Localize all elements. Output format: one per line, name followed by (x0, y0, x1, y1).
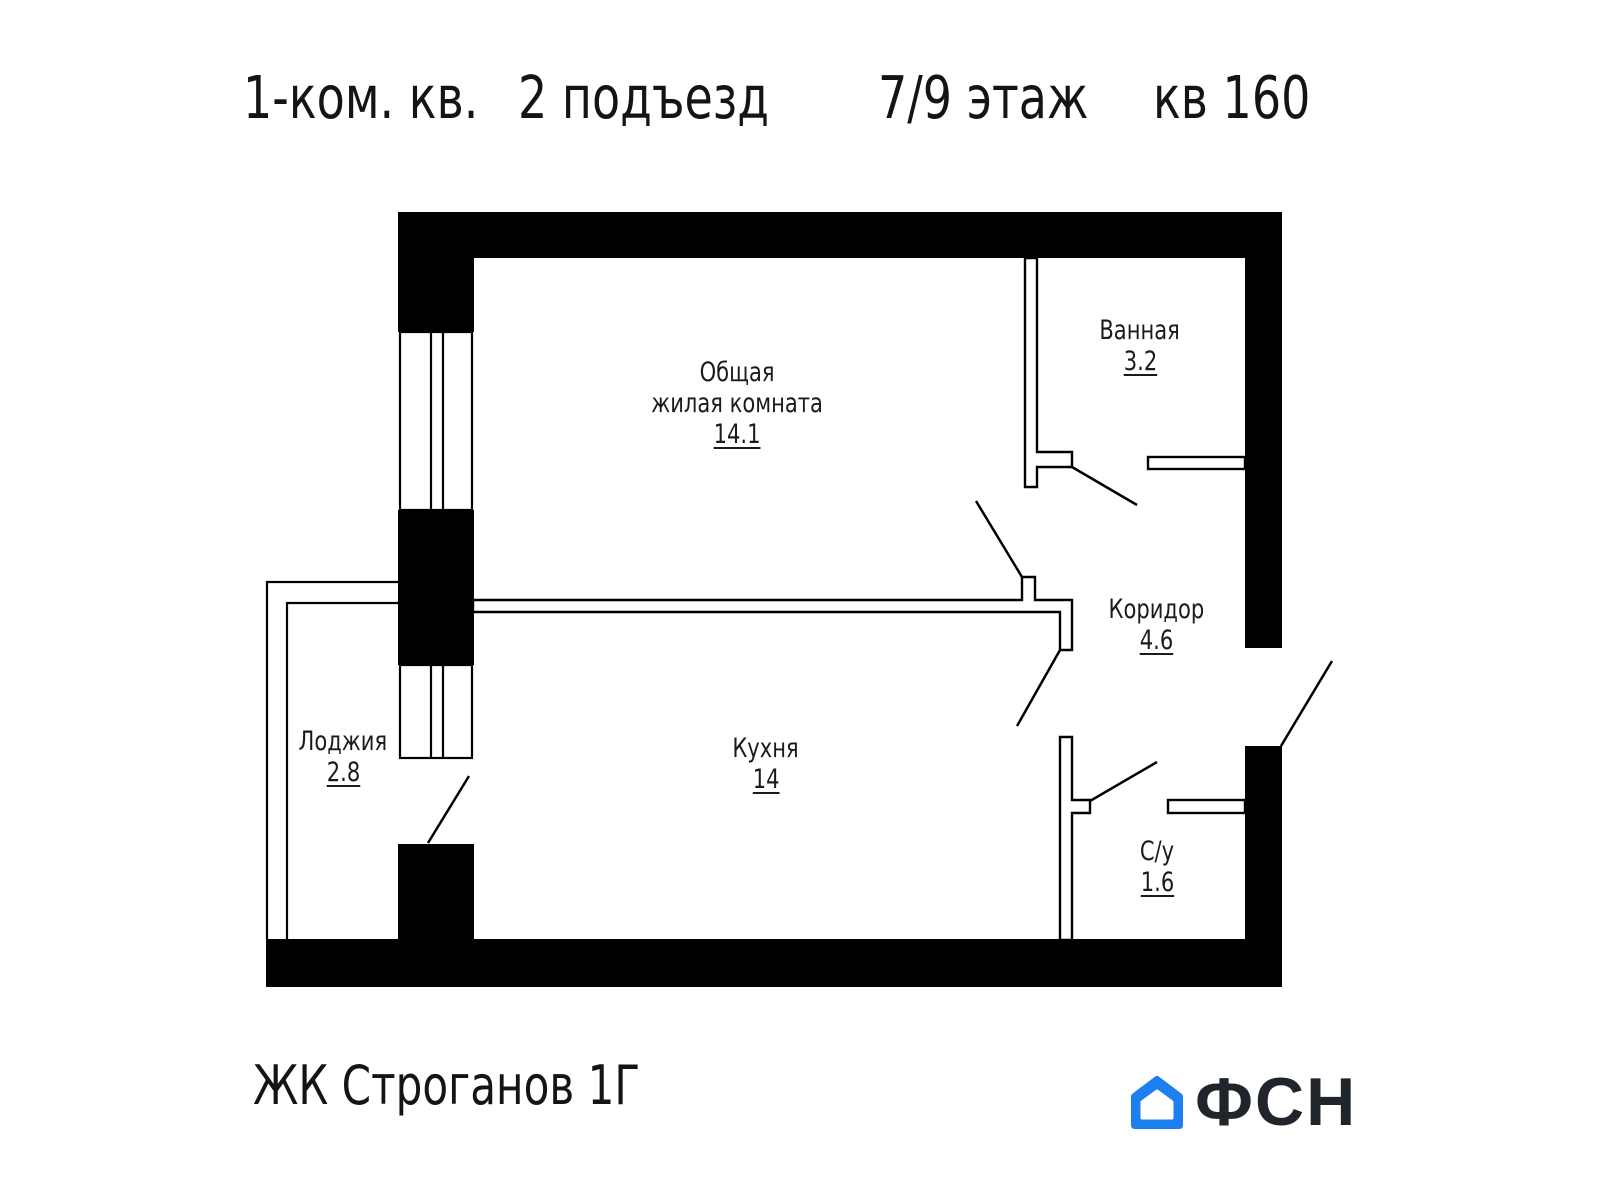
wall-right-upper (1245, 212, 1282, 648)
room-name-line2: жилая комната (607, 388, 867, 419)
complex-name: ЖК Строганов 1Г (253, 1054, 749, 1117)
door-bathroom-leaf (1072, 467, 1137, 505)
room-name: Коридор (1026, 594, 1286, 625)
door-kitchen-leaf (1017, 650, 1060, 726)
window-living-frame (400, 332, 472, 510)
room-label-kitchen: Кухня 14 (636, 733, 896, 795)
door-toilet-leaf (1090, 762, 1157, 801)
partition-toilet-right-stub (1168, 800, 1245, 813)
room-name: Кухня (636, 733, 896, 764)
room-label-living: Общая жилая комната 14.1 (607, 357, 867, 450)
wall-left-upper (398, 212, 474, 332)
house-icon (1131, 1076, 1183, 1129)
partition-living-kitchen (473, 577, 1072, 650)
room-label-loggia: Лоджия 2.8 (213, 726, 473, 788)
wall-top (398, 212, 1282, 258)
floorplan-page: 1-ком. кв. 2 подъезд 7/9 этаж кв 160 (0, 0, 1600, 1200)
partition-bathroom-right-stub (1148, 457, 1245, 469)
room-area: 14 (636, 764, 896, 795)
room-name: С/у (1027, 836, 1287, 867)
room-area: 3.2 (1010, 346, 1270, 377)
wall-left-lower (398, 844, 474, 939)
wall-bottom (266, 939, 1282, 987)
room-label-bathroom: Ванная 3.2 (1010, 315, 1270, 377)
door-entrance-leaf (1281, 661, 1332, 746)
room-name: Общая (607, 357, 867, 388)
door-living-leaf (976, 501, 1022, 577)
room-area: 1.6 (1027, 867, 1287, 898)
developer-logo: ФСН (1131, 1072, 1357, 1132)
brand-name: ФСН (1195, 1072, 1357, 1132)
room-label-corridor: Коридор 4.6 (1026, 594, 1286, 656)
wall-left-middle (398, 510, 474, 665)
room-area: 2.8 (213, 757, 473, 788)
room-name: Лоджия (213, 726, 473, 757)
room-name: Ванная (1010, 315, 1270, 346)
room-label-toilet: С/у 1.6 (1027, 836, 1287, 898)
floorplan-drawing (0, 0, 1600, 1200)
room-area: 4.6 (1026, 625, 1286, 656)
room-area: 14.1 (607, 419, 867, 450)
